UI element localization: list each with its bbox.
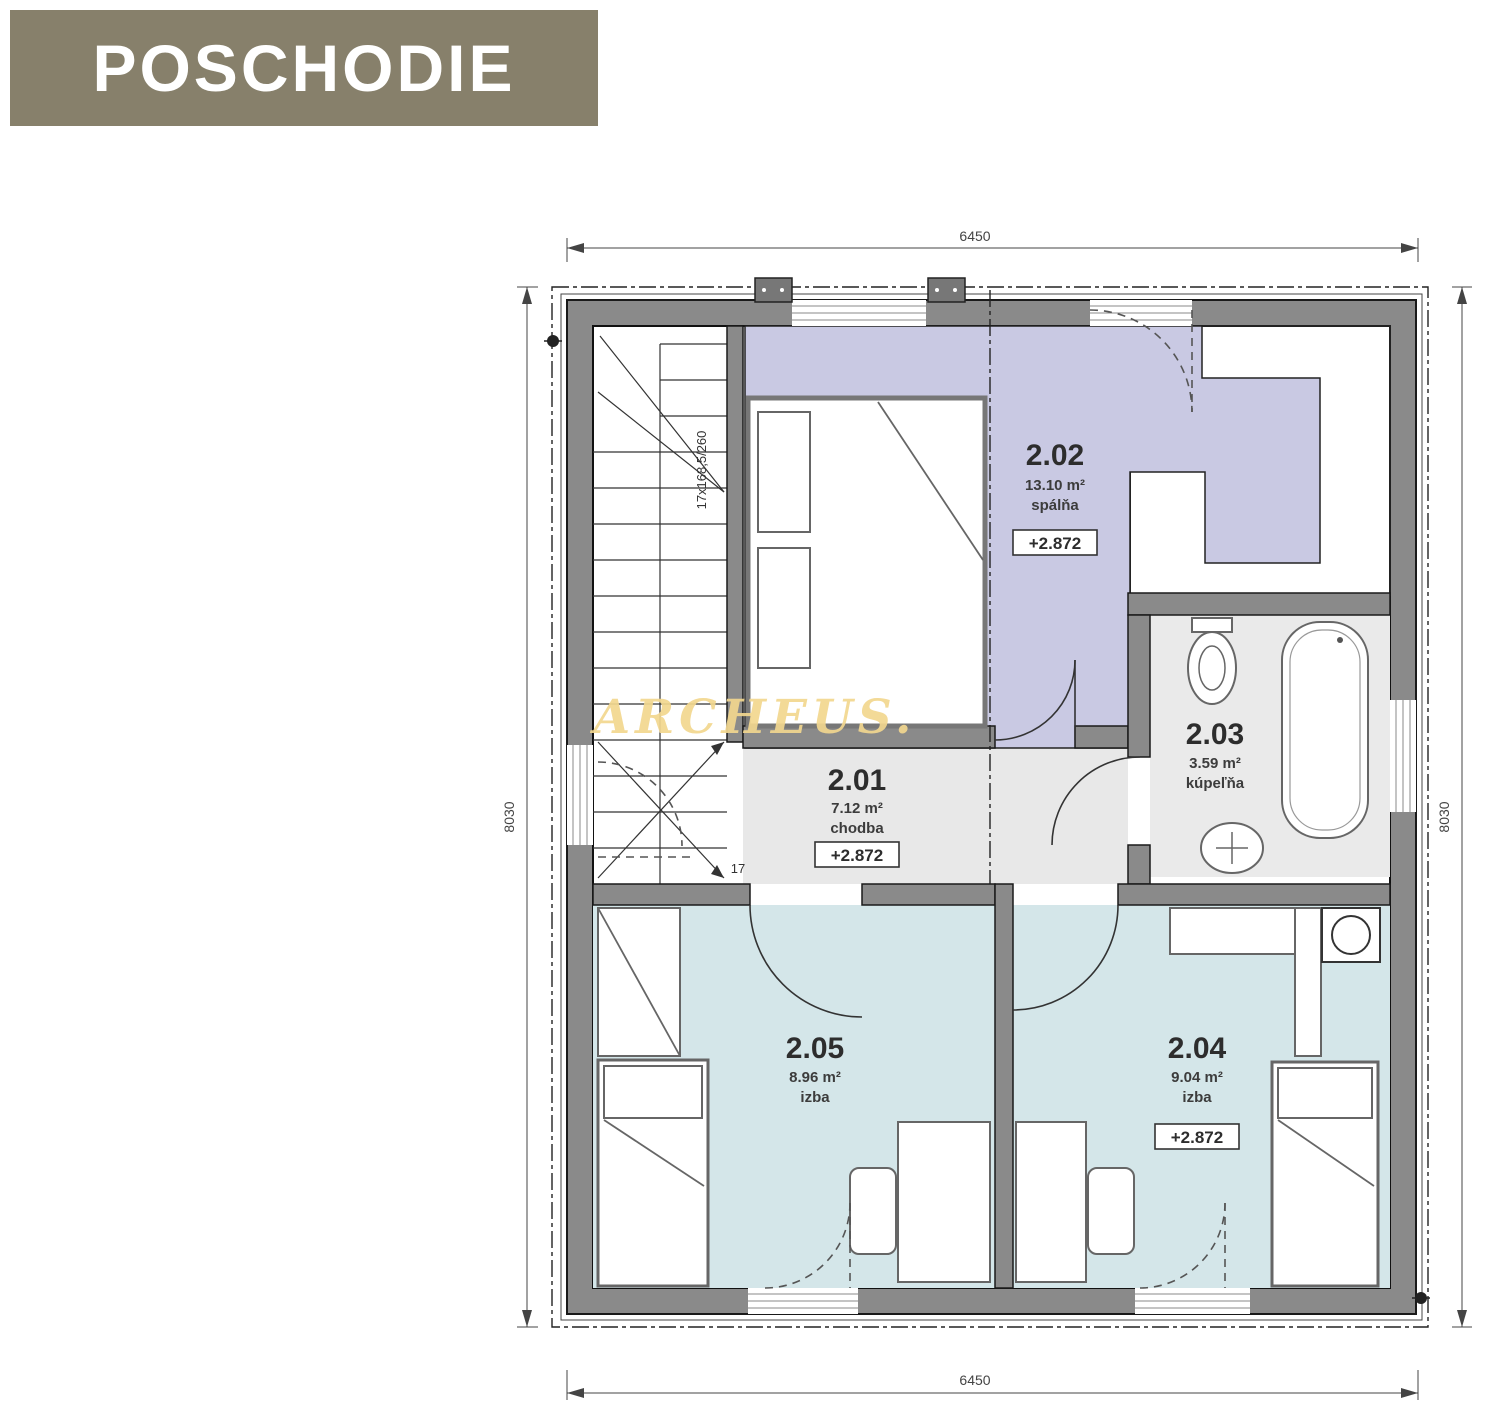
room-area: 9.04 m² xyxy=(1171,1069,1223,1086)
balcony-door-stair xyxy=(567,745,593,845)
room-name: izba xyxy=(1182,1089,1212,1106)
window-bathroom xyxy=(1390,700,1416,812)
lintel-dot xyxy=(762,288,766,292)
toilet-tank xyxy=(1192,618,1232,632)
room-area: 8.96 m² xyxy=(789,1069,841,1086)
room-number: 2.04 xyxy=(1168,1032,1227,1065)
corridor-floor xyxy=(743,726,1128,884)
balcony-door-room-205 xyxy=(748,1288,858,1314)
room-label-2-03: 2.03 3.59 m² kúpeľňa xyxy=(1186,718,1245,792)
dim-arrow xyxy=(1457,1310,1467,1327)
dim-bottom: 6450 xyxy=(567,1370,1418,1400)
room-area: 7.12 m² xyxy=(831,800,883,817)
dim-label-left: 8030 xyxy=(501,801,517,832)
pillow xyxy=(604,1066,702,1118)
dim-arrow xyxy=(522,1310,532,1327)
room-number: 2.03 xyxy=(1186,718,1244,751)
room-name: kúpeľňa xyxy=(1186,775,1245,792)
bathtub xyxy=(1282,622,1368,838)
stair-wall xyxy=(727,326,743,742)
dim-left: 8030 xyxy=(501,287,538,1327)
stair-step-number: 17 xyxy=(731,861,745,876)
lintel-block xyxy=(755,278,792,302)
rooms-divider-wall xyxy=(995,884,1013,1288)
bathroom-north-wall xyxy=(1128,593,1390,615)
room-number: 2.02 xyxy=(1026,439,1084,472)
dim-arrow xyxy=(567,243,584,253)
dim-label-top: 6450 xyxy=(959,228,990,244)
room-elevation: +2.872 xyxy=(1029,534,1081,553)
lintel-dot xyxy=(953,288,957,292)
mid-wall-east xyxy=(1118,884,1390,905)
page: POSCHODIE xyxy=(0,0,1500,1421)
dim-top: 6450 xyxy=(567,228,1418,262)
balcony-door-top xyxy=(1090,300,1192,326)
desk xyxy=(1016,1122,1086,1282)
dim-label-bottom: 6450 xyxy=(959,1372,990,1388)
lintel-dot xyxy=(780,288,784,292)
bathroom-west-wall-lower xyxy=(1128,845,1150,884)
balcony-door-room-204 xyxy=(1135,1288,1250,1314)
room-number: 2.01 xyxy=(828,764,886,797)
pillow xyxy=(758,548,810,668)
mid-wall-west xyxy=(593,884,750,905)
dim-label-right: 8030 xyxy=(1436,801,1452,832)
bathroom-west-wall-upper xyxy=(1128,615,1150,757)
lintel-block xyxy=(928,278,965,302)
basin xyxy=(1332,916,1370,954)
room-elevation: +2.872 xyxy=(1171,1128,1223,1147)
dim-arrow xyxy=(1457,287,1467,304)
dim-arrow xyxy=(1401,1388,1418,1398)
dim-arrow xyxy=(1401,243,1418,253)
room-number: 2.05 xyxy=(786,1032,844,1065)
mid-wall-center xyxy=(862,884,995,905)
room-name: spálňa xyxy=(1031,497,1079,514)
window-top-bedroom xyxy=(792,300,926,326)
dim-arrow xyxy=(522,287,532,304)
pillow xyxy=(758,412,810,532)
wardrobe xyxy=(1170,908,1295,954)
pillow xyxy=(1278,1068,1372,1118)
dim-arrow xyxy=(567,1388,584,1398)
lintel-dot xyxy=(935,288,939,292)
watermark: ARCHEUS. xyxy=(590,690,917,745)
chair xyxy=(850,1168,896,1254)
chair xyxy=(1088,1168,1134,1254)
shelf xyxy=(1295,908,1321,1056)
room-area: 3.59 m² xyxy=(1189,755,1241,772)
room-name: izba xyxy=(800,1089,830,1106)
desk xyxy=(898,1122,990,1282)
room-name: chodba xyxy=(830,820,884,837)
dim-right: 8030 xyxy=(1436,287,1472,1327)
room-area: 13.10 m² xyxy=(1025,477,1085,494)
toilet xyxy=(1188,632,1236,704)
stair-label: 17x168,5/260 xyxy=(694,431,709,510)
bedroom-south-wall-stub xyxy=(1075,726,1128,748)
floor-plan: 17x168,5/260 17 xyxy=(0,0,1500,1421)
room-elevation: +2.872 xyxy=(831,846,883,865)
bathtub-drain xyxy=(1337,637,1343,643)
